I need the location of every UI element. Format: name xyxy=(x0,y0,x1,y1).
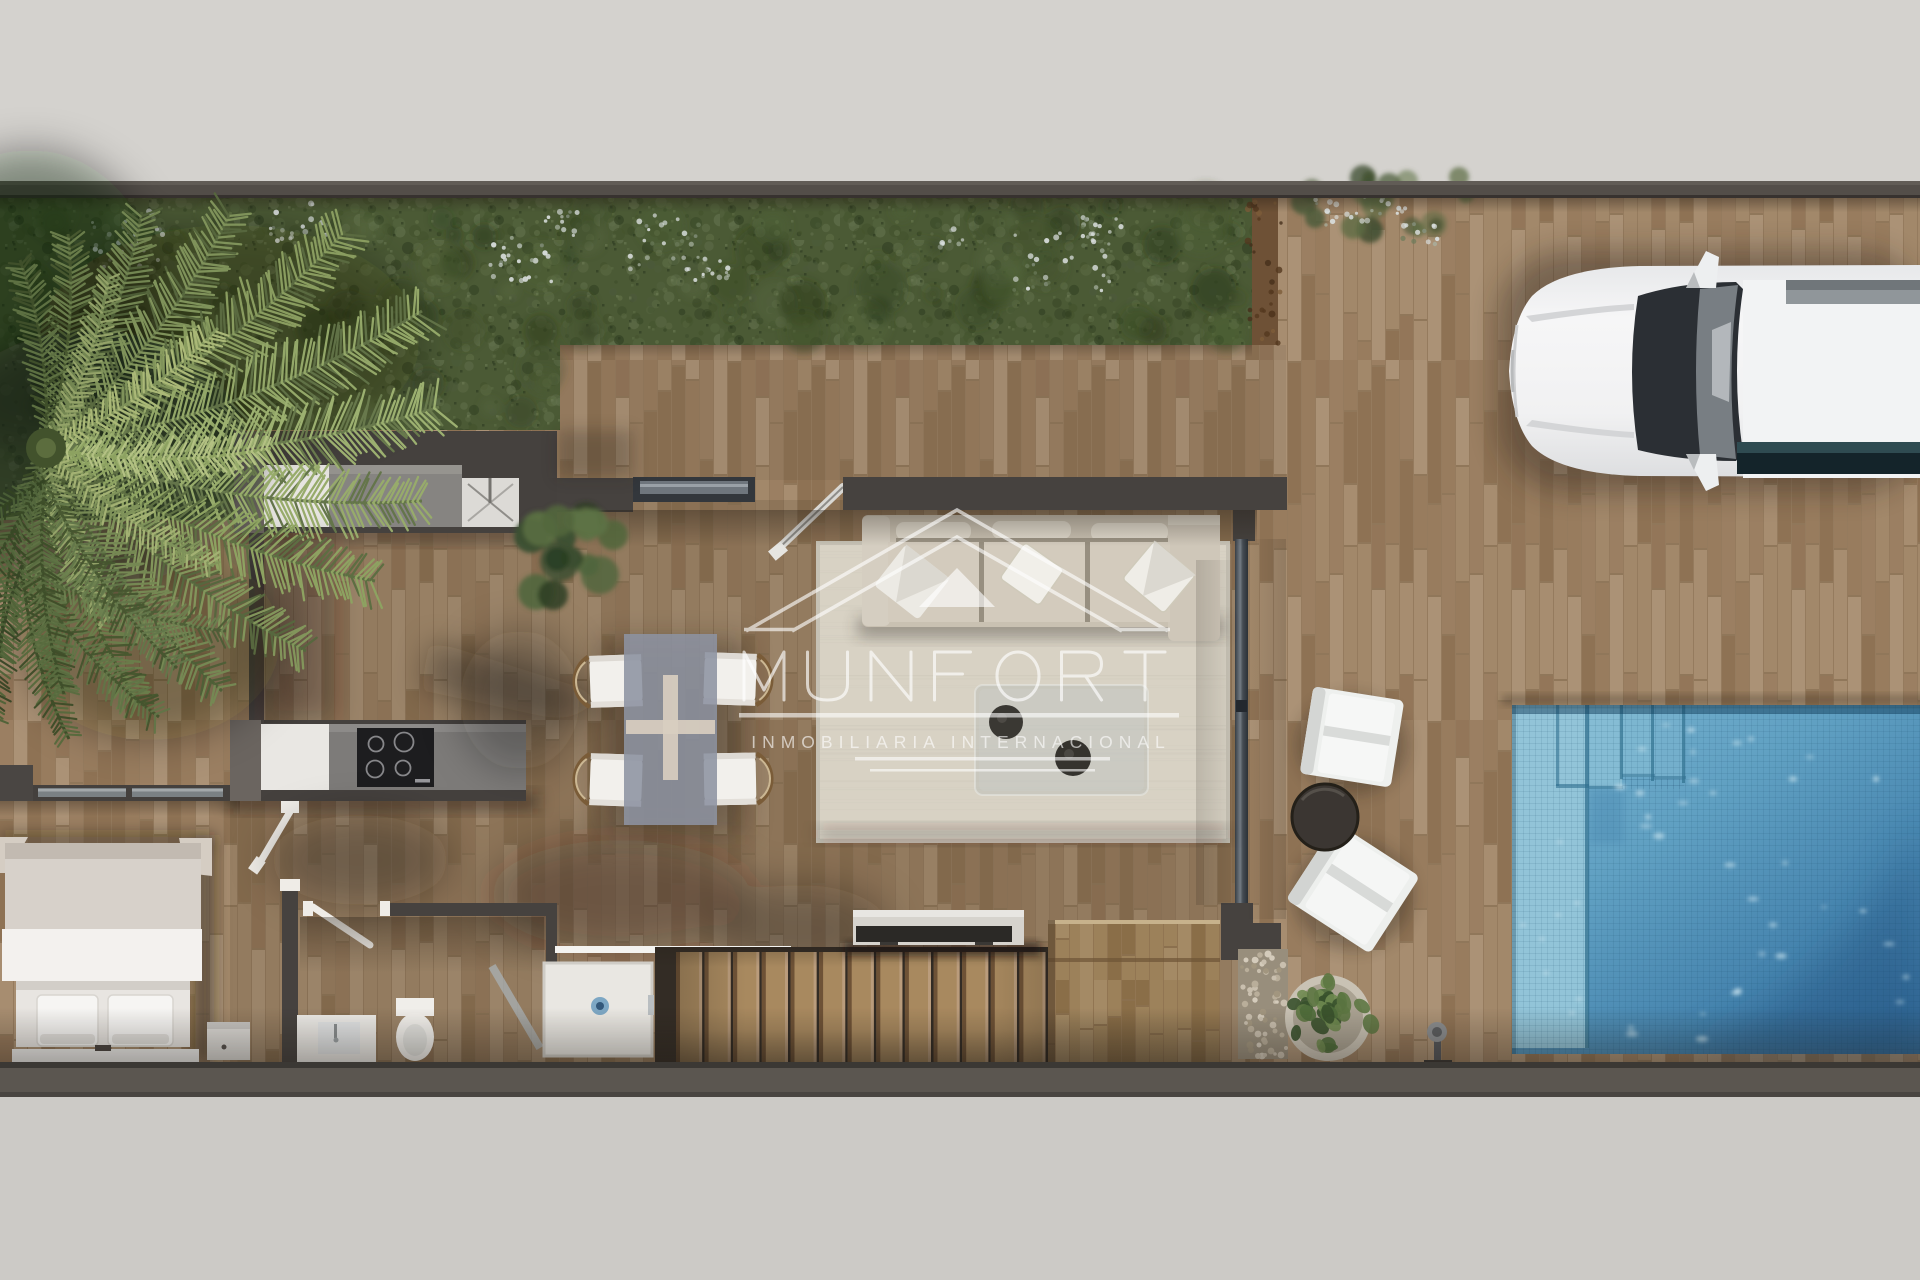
svg-text:INMOBILIARIA INTERNACIONAL: INMOBILIARIA INTERNACIONAL xyxy=(751,732,1171,752)
